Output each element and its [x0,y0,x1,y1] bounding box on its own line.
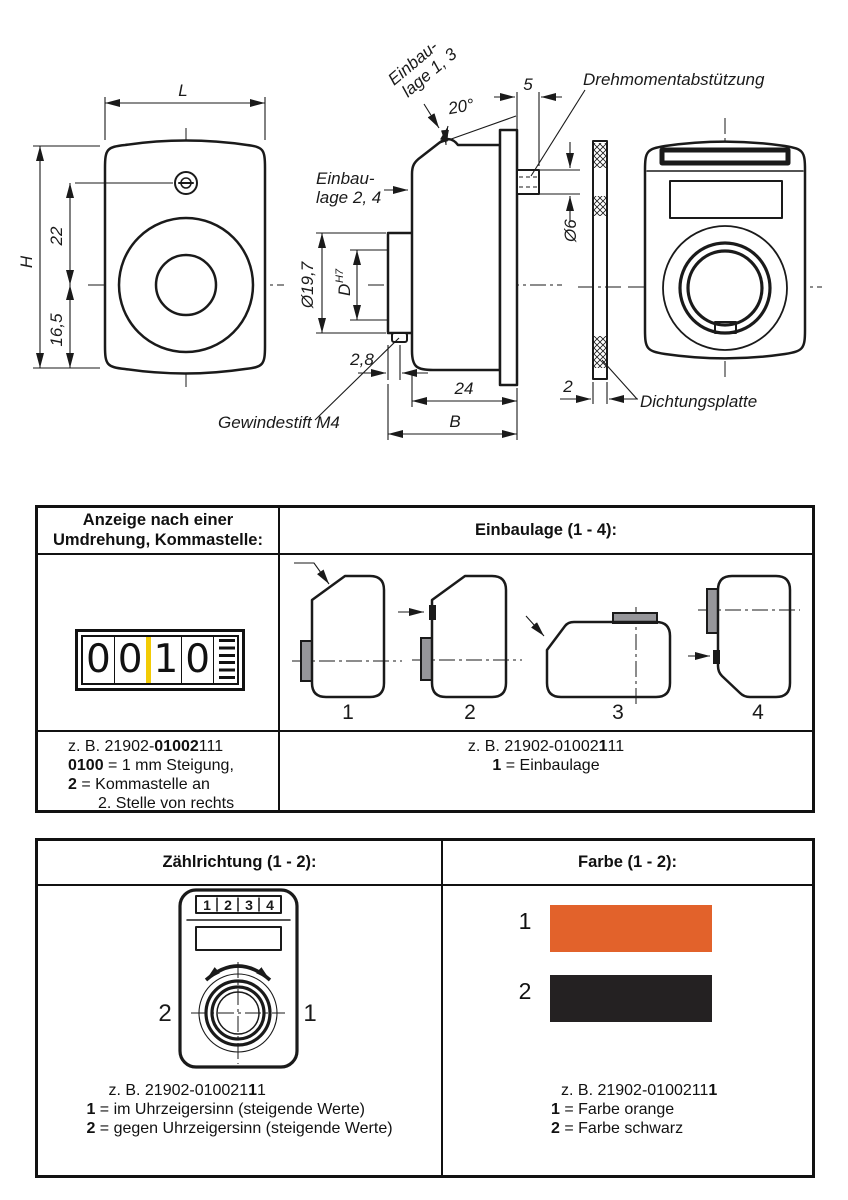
counter-digit: 0 [181,637,213,683]
table2-header-right: Farbe (1 - 2): [443,841,812,886]
dim-angle-20: 20° [446,95,476,118]
table1-footer-left: z. B. 21902-01002111 0100 = 1 mm Steigun… [38,730,280,810]
color-swatch-orange [550,905,712,952]
counter-digit: 0 [114,637,146,683]
dim-dia6: Ø6 [561,219,580,243]
svg-text:Einbau-: Einbau- [384,37,441,89]
table2-header-left-label: Zählrichtung (1 - 2): [163,853,317,872]
legend-line: 1 = im Uhrzeigersinn (steigende Werte) [86,1100,392,1119]
rear-view: Drehmomentabstützung [531,70,822,378]
dim-dia19-7: Ø19,7 [298,261,317,309]
label-drehmomentabstuetzung: Drehmomentabstützung [583,70,765,89]
svg-text:H7: H7 [334,268,346,283]
table1-header-right-label: Einbaulage (1 - 4): [475,521,617,540]
dim-L: L [178,81,187,100]
table2-header-left: Zählrichtung (1 - 2): [38,841,443,886]
rear-display-window [670,181,782,218]
dim-24: 24 [454,379,474,398]
counter-hatch-zone [213,637,237,683]
example-code: z. B. 21902-01002111 [551,1081,717,1100]
legend-line: 0100 = 1 mm Steigung, [68,756,278,775]
legend-line: 2. Stelle von rechts [68,794,278,813]
counter-display: 0 0 1 0 [75,629,245,691]
example-code: z. B. 21902-01002111 [86,1081,392,1100]
catalog-page: Anzeige nach einer Umdrehung, Kommastell… [0,0,848,1200]
legend-line: 1 = Einbaulage [280,756,812,775]
table1-header-left-line1: Anzeige nach einer [83,511,233,530]
swatch-1-label: 1 [513,908,537,935]
setscrew-front [175,172,197,194]
table2-footer-right: z. B. 21902-01002111 1 = Farbe orange 2 … [551,1081,717,1138]
legend-line: 1 = Farbe orange [551,1100,717,1119]
swatch-2-label: 2 [513,978,537,1005]
counter-digit: 1 [151,637,182,683]
legend-line: 2 = Kommastelle an [68,775,278,794]
dim-5: 5 [523,75,533,94]
svg-text:lage 2, 4: lage 2, 4 [316,188,381,207]
label-gewindestift-m4: Gewindestift M4 [218,413,340,432]
table1-header-right: Einbaulage (1 - 4): [280,508,812,555]
dim-H: H [17,255,36,268]
dim-2: 2 [562,377,573,396]
svg-text:lage 1, 3: lage 1, 3 [398,44,461,101]
table-anzeige-einbaulage: Anzeige nach einer Umdrehung, Kommastell… [35,505,815,813]
example-code: z. B. 21902-01002111 [68,737,278,756]
table1-body-right [280,555,812,730]
label-einbaulage-2-4: Einbau- lage 2, 4 [316,169,381,207]
svg-text:D: D [335,284,354,296]
table2-header-right-label: Farbe (1 - 2): [578,853,677,872]
table1-header-left-line2: Umdrehung, Kommastelle: [53,531,263,550]
front-view: L H 22 16,5 [17,81,284,388]
table2-footer-left: z. B. 21902-01002111 1 = im Uhrzeigersin… [38,1081,441,1138]
svg-text:Einbau-: Einbau- [316,169,375,188]
table1-body-left: 0 0 1 0 [38,555,280,730]
legend-line: 2 = gegen Uhrzeigersinn (steigende Werte… [86,1119,392,1138]
dim-16-5: 16,5 [47,313,66,347]
hub [388,233,414,333]
dim-22: 22 [47,226,66,246]
torque-pin [517,170,539,194]
counter-window: 0 0 1 0 [81,635,239,685]
rear-top-bar [662,150,788,163]
legend-line: 2 = Farbe schwarz [551,1119,717,1138]
example-code: z. B. 21902-01002111 [280,737,812,756]
color-swatch-black [550,975,712,1022]
side-view: 20° 5 Ø6 Ø19,7 D H7 [218,30,580,440]
label-dichtungsplatte: Dichtungsplatte [640,392,757,411]
table2-body-left: z. B. 21902-01002111 1 = im Uhrzeigersin… [38,886,443,1175]
setscrew-side [392,333,407,342]
seal-plate: 2 Dichtungsplatte [560,141,757,411]
rear-tab [715,322,736,333]
table1-footer-right: z. B. 21902-01002111 1 = Einbaulage [280,730,812,810]
table1-header-left: Anzeige nach einer Umdrehung, Kommastell… [38,508,280,555]
dim-2-8: 2,8 [349,350,374,369]
dim-B: B [449,412,460,431]
dim-D-H7: D H7 [334,268,354,296]
label-einbaulage-1-3: Einbau- lage 1, 3 [384,30,460,103]
counter-digit: 0 [83,637,114,683]
